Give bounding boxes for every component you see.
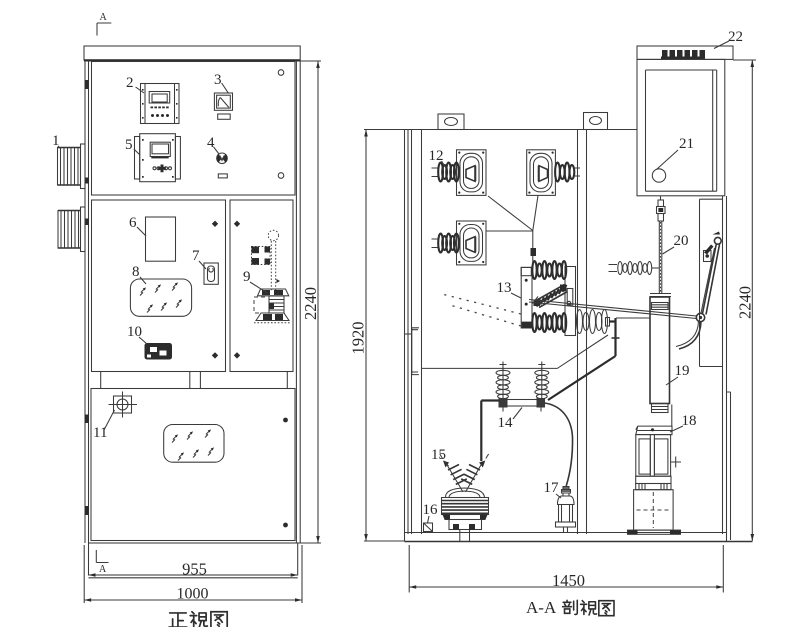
svg-text:9: 9	[243, 269, 251, 285]
svg-text:6: 6	[129, 215, 137, 231]
svg-text:17: 17	[544, 480, 560, 496]
svg-text:2240: 2240	[301, 287, 320, 320]
svg-text:1450: 1450	[552, 571, 585, 590]
svg-text:A: A	[100, 12, 108, 23]
svg-text:4: 4	[207, 135, 215, 151]
svg-text:3: 3	[214, 72, 222, 88]
svg-text:12: 12	[429, 148, 444, 164]
svg-text:1000: 1000	[177, 585, 209, 602]
svg-text:1920: 1920	[348, 322, 367, 355]
svg-text:A: A	[99, 564, 107, 575]
svg-text:19: 19	[675, 363, 690, 379]
svg-text:7: 7	[192, 248, 200, 264]
svg-text:2240: 2240	[735, 286, 754, 319]
svg-text:13: 13	[497, 280, 512, 296]
svg-text:A-A: A-A	[526, 598, 557, 617]
svg-text:5: 5	[125, 137, 133, 153]
svg-text:2: 2	[126, 75, 134, 91]
svg-text:16: 16	[423, 502, 439, 518]
svg-text:22: 22	[728, 29, 743, 45]
svg-text:14: 14	[498, 415, 514, 431]
svg-text:21: 21	[679, 136, 694, 152]
svg-text:15: 15	[431, 447, 446, 463]
svg-text:955: 955	[182, 559, 207, 578]
svg-text:20: 20	[674, 233, 689, 249]
svg-text:8: 8	[132, 264, 140, 280]
svg-text:18: 18	[682, 413, 697, 429]
